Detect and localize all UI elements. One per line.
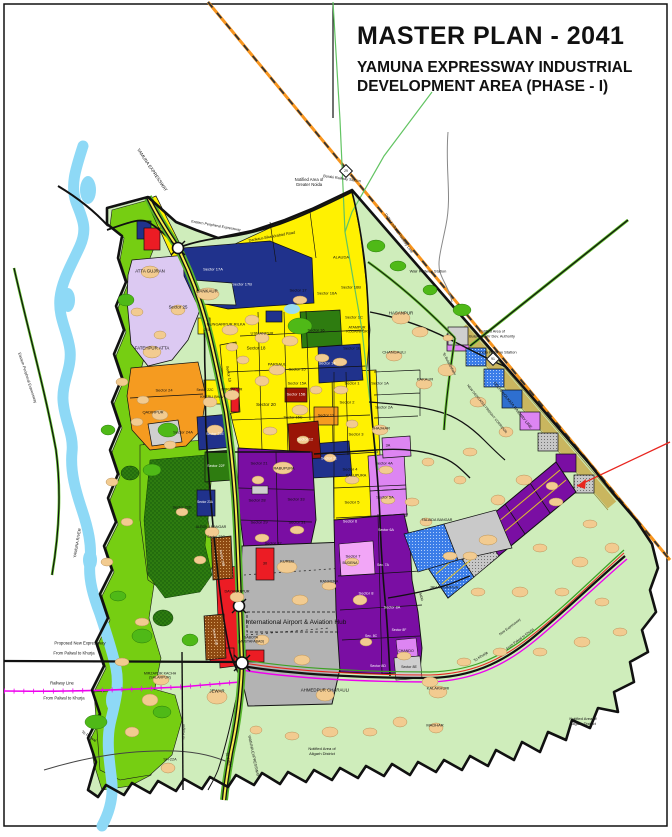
map-subtitle-line1: YAMUNA EXPRESSWAY INDUSTRIAL — [357, 59, 659, 78]
map-title: MASTER PLAN - 2041 — [357, 22, 659, 51]
map-subtitle-line2: DEVELOPMENT AREA (PHASE - I) — [357, 78, 659, 97]
master-plan-map: MASTER PLAN - 2041 YAMUNA EXPRESSWAY IND… — [0, 0, 672, 837]
map-canvas — [0, 0, 672, 837]
title-block: MASTER PLAN - 2041 YAMUNA EXPRESSWAY IND… — [357, 22, 659, 96]
